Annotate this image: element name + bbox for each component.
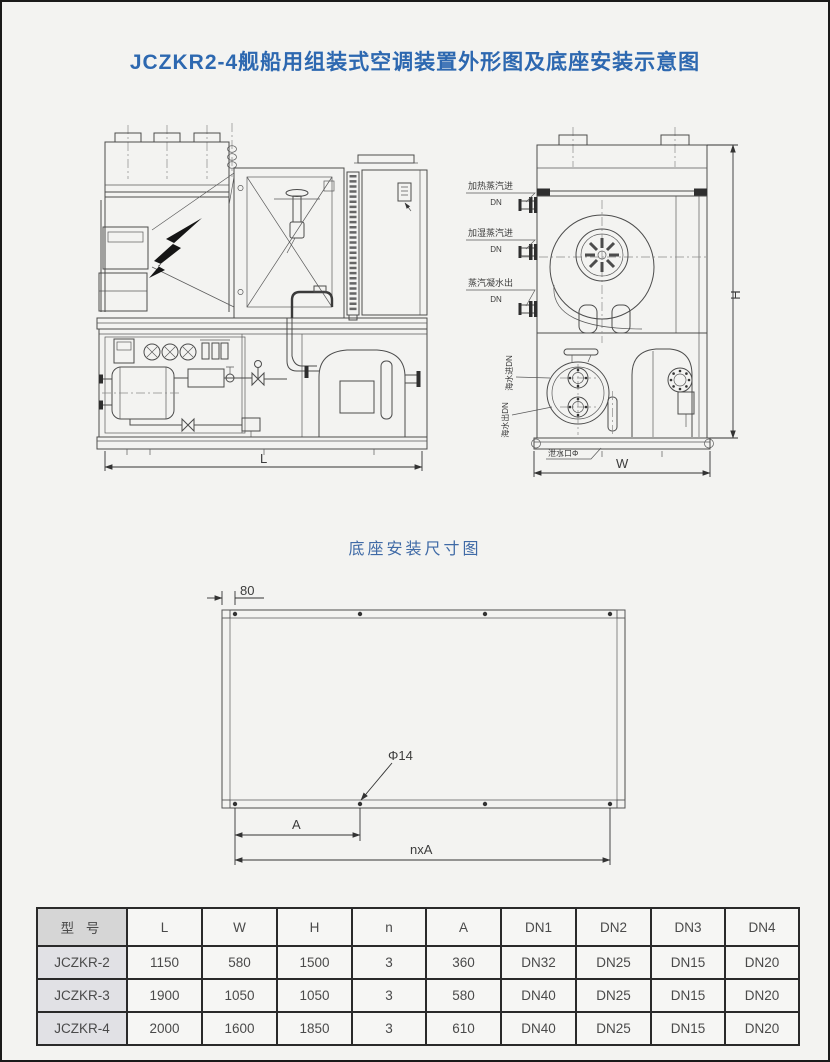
drain-label: 泄水口Φ (548, 448, 578, 458)
expansion-valve-icon (252, 361, 287, 386)
base-frame (222, 610, 625, 808)
side-casing (537, 127, 707, 438)
dim-L-label: L (260, 451, 267, 466)
fan-section (99, 173, 234, 312)
compressor-side (632, 349, 694, 437)
height-dimension: H (707, 145, 743, 438)
header-L: L (127, 908, 202, 946)
steam-in-label: 加热蒸汽进 (468, 180, 513, 191)
header-W: W (202, 908, 277, 946)
cell: 360 (426, 946, 501, 979)
cell: DN40 (501, 1012, 576, 1045)
table-row: JCZKR-3 1900 1050 1050 3 580 DN40 DN25 D… (37, 979, 799, 1012)
cell-model: JCZKR-2 (37, 946, 127, 979)
machinery-compartment (99, 318, 427, 437)
cell-model: JCZKR-3 (37, 979, 127, 1012)
drain-callout: 泄水口Φ (546, 448, 601, 459)
header-DN3: DN3 (651, 908, 725, 946)
seawater-in-label: 海水进DN (504, 355, 514, 391)
spec-table-section: 型 号 L W H n A DN1 DN2 DN3 DN4 JCZKR-2 11… (36, 907, 800, 1046)
cell: 3 (352, 979, 426, 1012)
hole-diameter-label: Φ14 (388, 748, 413, 763)
flange-icon (668, 368, 692, 392)
pipe-connection-1 (519, 197, 538, 213)
heater-slot-strip (347, 172, 359, 320)
mounting-holes (233, 612, 612, 806)
hole-diameter-callout: Φ14 (361, 748, 413, 800)
humid-steam-in-size: DN (490, 245, 502, 254)
centrifugal-fan (522, 200, 707, 343)
cell: 1600 (202, 1012, 277, 1045)
dim-nxA-label: nxA (410, 842, 433, 857)
page-title: JCZKR2-4舰船用组装式空调装置外形图及底座安装示意图 (2, 46, 828, 76)
cell: DN25 (576, 979, 651, 1012)
header-model: 型 号 (37, 908, 127, 946)
pitch-dimension: A (235, 808, 360, 865)
condenser-vessel (99, 367, 182, 419)
liquid-pipe-valve (130, 418, 260, 437)
cell: 610 (426, 1012, 501, 1045)
lightning-bolt-icon (149, 218, 202, 278)
filter-drier (174, 367, 252, 387)
condensate-out-size: DN (490, 295, 502, 304)
cell: 1050 (202, 979, 277, 1012)
cell: 580 (426, 979, 501, 1012)
access-panel (354, 155, 427, 315)
cell: DN25 (576, 1012, 651, 1045)
cell: DN25 (576, 946, 651, 979)
header-n: n (352, 908, 426, 946)
outline-drawing: L (2, 115, 830, 515)
base-installation-diagram: 80 Φ14 A nxA (2, 577, 830, 877)
side-view: 加热蒸汽进 DN 加湿蒸汽进 DN 蒸汽凝水出 DN (466, 127, 743, 477)
cell: DN20 (725, 979, 799, 1012)
connection-labels: 加热蒸汽进 DN 加湿蒸汽进 DN 蒸汽凝水出 DN (466, 180, 535, 306)
front-view: L (97, 123, 427, 471)
air-outlet-plenum (105, 123, 237, 192)
dim-W-label: W (616, 456, 629, 471)
pipe-connection-2 (519, 244, 538, 260)
cell: DN40 (501, 979, 576, 1012)
cell: DN20 (725, 1012, 799, 1045)
length-dimension: L (105, 451, 422, 471)
pressure-gauge-icon (144, 344, 196, 360)
cell: 2000 (127, 1012, 202, 1045)
humidifier-nozzle (274, 190, 320, 254)
condenser-end-view: 海水进DN 海水出DN (500, 349, 609, 438)
cell: 1850 (277, 1012, 352, 1045)
cell: 1050 (277, 979, 352, 1012)
header-DN1: DN1 (501, 908, 576, 946)
edge-offset-dimension: 80 (207, 583, 264, 605)
compressor-front (305, 350, 421, 437)
coil-filter-section (234, 168, 344, 318)
cell: DN15 (651, 946, 725, 979)
steam-in-size: DN (490, 198, 502, 207)
cell: DN32 (501, 946, 576, 979)
cell: DN15 (651, 1012, 725, 1045)
cell: 1150 (127, 946, 202, 979)
cell: 1500 (277, 946, 352, 979)
cell: DN20 (725, 946, 799, 979)
sight-tube (608, 391, 617, 437)
table-header-row: 型 号 L W H n A DN1 DN2 DN3 DN4 (37, 908, 799, 946)
table-row: JCZKR-2 1150 580 1500 3 360 DN32 DN25 DN… (37, 946, 799, 979)
cell: DN15 (651, 979, 725, 1012)
cell: 3 (352, 946, 426, 979)
cell-model: JCZKR-4 (37, 1012, 127, 1045)
spec-table: 型 号 L W H n A DN1 DN2 DN3 DN4 JCZKR-2 11… (36, 907, 800, 1046)
header-DN4: DN4 (725, 908, 799, 946)
table-row: JCZKR-4 2000 1600 1850 3 610 DN40 DN25 D… (37, 1012, 799, 1045)
base-section-title: 底座安装尺寸图 (2, 535, 828, 559)
cell: 580 (202, 946, 277, 979)
dim-80-label: 80 (240, 583, 254, 598)
header-DN2: DN2 (576, 908, 651, 946)
humid-steam-in-label: 加湿蒸汽进 (468, 227, 513, 238)
mid-frame-band (97, 318, 427, 329)
instrument-panel (114, 339, 230, 363)
cell: 1900 (127, 979, 202, 1012)
condensate-out-label: 蒸汽凝水出 (468, 277, 513, 288)
header-H: H (277, 908, 352, 946)
pipe-connection-3 (519, 301, 538, 317)
cell: 3 (352, 1012, 426, 1045)
catalog-page: JCZKR2-4舰船用组装式空调装置外形图及底座安装示意图 (0, 0, 830, 1062)
seawater-out-label: 海水出DN (500, 402, 510, 438)
dim-A-label: A (292, 817, 301, 832)
nameplate-detail (398, 183, 411, 211)
dim-H-label: H (728, 290, 743, 299)
header-A: A (426, 908, 501, 946)
drain-u-pipe (292, 286, 332, 318)
